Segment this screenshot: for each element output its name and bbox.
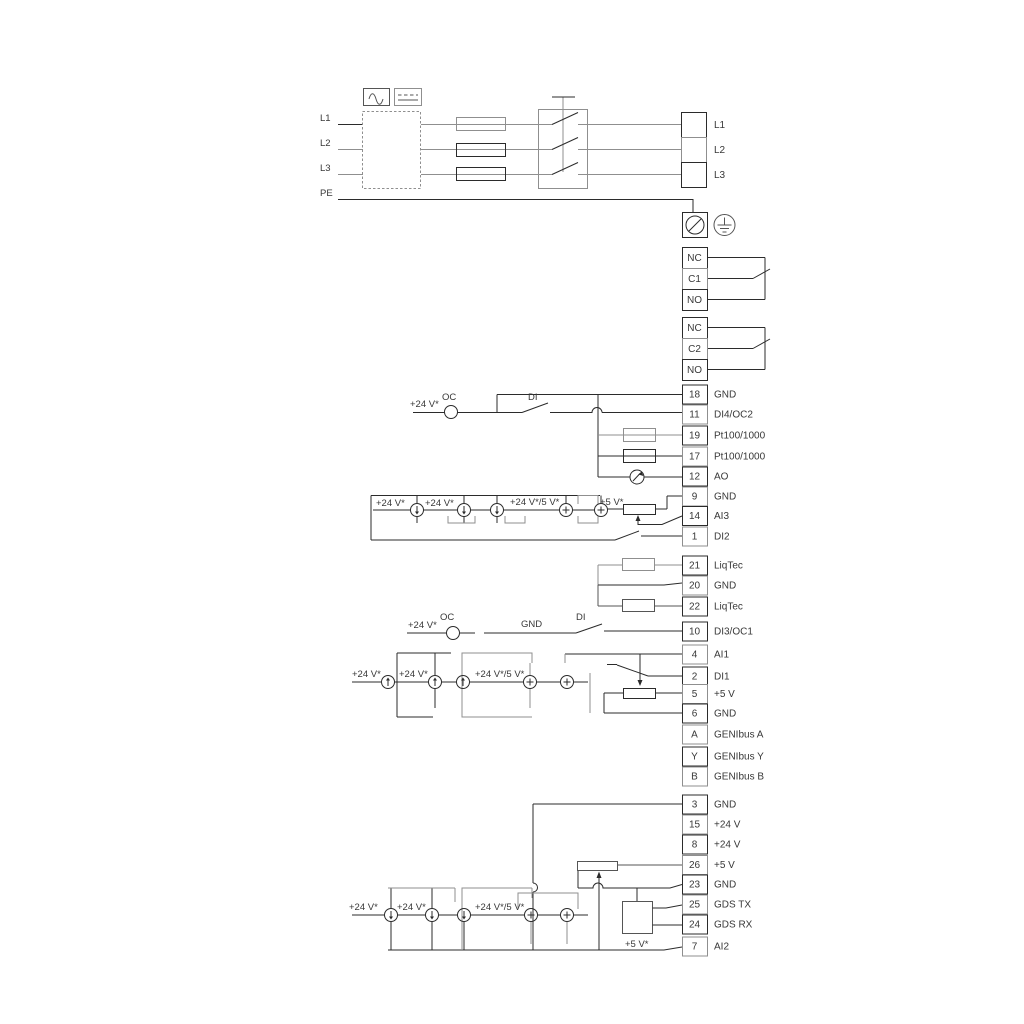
liqtec-terminal-label: GND bbox=[714, 581, 736, 592]
dc-symbol-icon bbox=[395, 89, 422, 106]
io-top-terminal-label: DI4/OC2 bbox=[714, 410, 753, 421]
io-mid-terminal-number: Y bbox=[691, 752, 698, 763]
annotation-ai3_s4: +5 V* bbox=[600, 497, 624, 508]
annotation-di3: DI bbox=[576, 612, 586, 623]
io-mid-terminal-label: +5 V bbox=[714, 689, 735, 700]
oc2-open-collector-icon bbox=[445, 406, 458, 419]
io-bottom-terminal-label: +5 V bbox=[714, 860, 735, 871]
relay1-terminal-number: NC bbox=[687, 253, 701, 264]
section-ai1 bbox=[352, 653, 682, 717]
relay2-terminal-number: C2 bbox=[688, 344, 701, 355]
power-out-terminal-cell bbox=[682, 113, 707, 138]
io-mid-terminal-label: GENIbus Y bbox=[714, 752, 764, 763]
terminal-blocks-layer: NCC1NONCC2NO18111917129141212022104256AY… bbox=[682, 113, 708, 957]
liqtec-terminal-number: 20 bbox=[689, 581, 701, 592]
io-top-terminal-number: 11 bbox=[689, 410, 700, 421]
annotation-ai2_s3: +24 V*/5 V* bbox=[475, 902, 525, 913]
io-bottom-terminal-label: +24 V bbox=[714, 840, 741, 851]
io-bottom-terminal-number: 24 bbox=[689, 920, 701, 931]
power-out-terminal-cell bbox=[682, 138, 707, 163]
ai1-potentiometer bbox=[604, 689, 682, 714]
io-bottom-terminal-number: 26 bbox=[689, 860, 701, 871]
io-top-terminal-label: GND bbox=[714, 492, 736, 503]
liqtec-terminal-label: LiqTec bbox=[714, 561, 743, 572]
liqtec-terminal-label: LiqTec bbox=[714, 602, 743, 613]
power-out-terminal-label: L1 bbox=[714, 120, 726, 131]
io-top-terminal-number: 1 bbox=[692, 532, 698, 543]
annotation-ai1_s3: +24 V*/5 V* bbox=[475, 669, 525, 680]
relay1-terminal-number: C1 bbox=[688, 274, 701, 285]
annotation-oc2_supply: +24 V* bbox=[410, 399, 439, 410]
io-bottom-terminal-number: 8 bbox=[692, 840, 698, 851]
annotation-ai3_s2: +24 V* bbox=[425, 498, 454, 509]
annotation-1: L2 bbox=[320, 138, 331, 149]
io-bottom-terminal-number: 23 bbox=[689, 880, 701, 891]
annotation-oc2: OC bbox=[442, 392, 456, 403]
io-mid-terminal-number: 10 bbox=[689, 627, 701, 638]
gds-sensor-box bbox=[623, 888, 683, 934]
section-oc2-di4 bbox=[413, 395, 682, 485]
annotation-di4: DI bbox=[528, 392, 538, 403]
power-out-terminal-label: L3 bbox=[714, 170, 726, 181]
io-mid-terminal-number: 2 bbox=[692, 672, 698, 683]
io-mid-terminal-number: A bbox=[691, 730, 698, 741]
io-top-terminal-number: 12 bbox=[689, 472, 701, 483]
io-bottom-terminal-label: GDS TX bbox=[714, 900, 751, 911]
io-mid-terminal-number: 4 bbox=[692, 650, 698, 661]
io-top-terminal-number: 19 bbox=[689, 431, 701, 442]
annotation-oc1: OC bbox=[440, 612, 454, 623]
io-mid-terminal-number: B bbox=[691, 772, 698, 783]
ac-symbol-icon bbox=[364, 89, 390, 106]
io-top-terminal-label: Pt100/1000 bbox=[714, 452, 766, 463]
io-bottom-terminal-label: GND bbox=[714, 800, 736, 811]
io-mid-terminal-number: 5 bbox=[692, 689, 698, 700]
io-bottom-terminal-number: 3 bbox=[692, 800, 698, 811]
io-mid-terminal-label: GENIbus B bbox=[714, 772, 764, 783]
annotation-3: PE bbox=[320, 188, 333, 199]
ai3-potentiometer bbox=[624, 496, 683, 525]
liqtec-terminal-number: 22 bbox=[689, 602, 701, 613]
io-top-terminal-label: AO bbox=[714, 472, 729, 483]
annotation-0: L1 bbox=[320, 113, 331, 124]
io-bottom-terminal-number: 15 bbox=[689, 820, 701, 831]
earth-icon bbox=[714, 215, 735, 236]
mains-input-section bbox=[338, 89, 681, 189]
io-top-terminal-number: 17 bbox=[689, 452, 701, 463]
power-out-terminal-cell bbox=[682, 163, 707, 188]
wiring-diagram: NCC1NONCC2NO18111917129141212022104256AY… bbox=[0, 0, 1024, 1024]
io-mid-terminal-label: AI1 bbox=[714, 650, 729, 661]
io-top-terminal-number: 14 bbox=[689, 511, 701, 522]
liqtec-terminal-number: 21 bbox=[689, 561, 701, 572]
annotation-ai3_s3: +24 V*/5 V* bbox=[510, 497, 560, 508]
annotation-2: L3 bbox=[320, 163, 331, 174]
filter-box bbox=[363, 112, 421, 189]
ai2-potentiometer bbox=[578, 862, 683, 951]
io-top-terminal-label: DI2 bbox=[714, 532, 730, 543]
section-oc1-di3 bbox=[407, 624, 682, 640]
io-top-terminal-label: AI3 bbox=[714, 511, 729, 522]
io-top-terminal-number: 9 bbox=[692, 492, 698, 503]
relay1-contact bbox=[707, 258, 770, 300]
relay2-contact bbox=[707, 328, 770, 370]
annotation-ai2_s1: +24 V* bbox=[349, 902, 378, 913]
io-mid-terminal-label: DI1 bbox=[714, 672, 730, 683]
io-mid-terminal-label: DI3/OC1 bbox=[714, 627, 753, 638]
io-bottom-terminal-label: +24 V bbox=[714, 820, 741, 831]
annotation-gnd_wire: GND bbox=[521, 619, 542, 630]
relay2-terminal-number: NC bbox=[687, 323, 701, 334]
io-top-terminal-label: Pt100/1000 bbox=[714, 431, 766, 442]
io-top-terminal-label: GND bbox=[714, 390, 736, 401]
io-bottom-terminal-label: GND bbox=[714, 880, 736, 891]
oc1-open-collector-icon bbox=[447, 627, 460, 640]
io-bottom-terminal-number: 7 bbox=[692, 942, 698, 953]
relay1-terminal-number: NO bbox=[687, 295, 702, 306]
annotation-ai3_s1: +24 V* bbox=[376, 498, 405, 509]
liqtec-resistor-1 bbox=[623, 559, 655, 571]
section-ai2-gds bbox=[352, 804, 682, 950]
relay2-terminal-number: NO bbox=[687, 365, 702, 376]
io-mid-terminal-label: GND bbox=[714, 709, 736, 720]
annotation-ai1_s1: +24 V* bbox=[352, 669, 381, 680]
annotation-ai2_s4: +5 V* bbox=[625, 939, 649, 950]
annotation-ai2_s2: +24 V* bbox=[397, 902, 426, 913]
wiring-diagram-page: NCC1NONCC2NO18111917129141212022104256AY… bbox=[0, 0, 1024, 1024]
liqtec-resistor-2 bbox=[623, 600, 655, 612]
io-bottom-terminal-label: AI2 bbox=[714, 942, 729, 953]
power-out-terminal-label: L2 bbox=[714, 145, 726, 156]
annotation-oc1_supply: +24 V* bbox=[408, 620, 437, 631]
io-bottom-terminal-label: GDS RX bbox=[714, 920, 753, 931]
pe-section bbox=[338, 200, 735, 238]
section-liqtec bbox=[598, 559, 682, 612]
io-mid-terminal-number: 6 bbox=[692, 709, 698, 720]
io-mid-terminal-label: GENIbus A bbox=[714, 730, 764, 741]
io-bottom-terminal-number: 25 bbox=[689, 900, 701, 911]
io-top-terminal-number: 18 bbox=[689, 390, 701, 401]
annotation-ai1_s2: +24 V* bbox=[399, 669, 428, 680]
